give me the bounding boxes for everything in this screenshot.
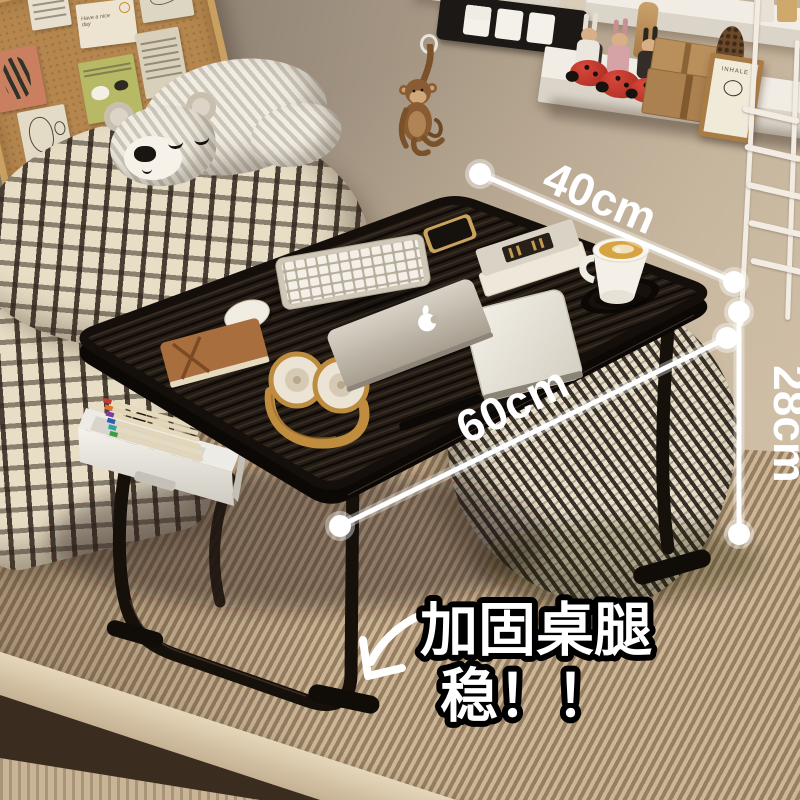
- table-shadow: [480, 520, 760, 600]
- table-scene-overlay: 40cm 28cm 60cm 加固桌腿 稳！！: [0, 0, 800, 800]
- callout: 加固桌腿 稳！！: [363, 598, 652, 729]
- callout-text-line2: 稳！！: [440, 664, 614, 729]
- product-photo-bed-laptop-table: Have a nice day: [0, 0, 800, 800]
- dimension-label-28cm: 28cm: [764, 365, 800, 483]
- callout-text-line1: 加固桌腿: [420, 598, 652, 663]
